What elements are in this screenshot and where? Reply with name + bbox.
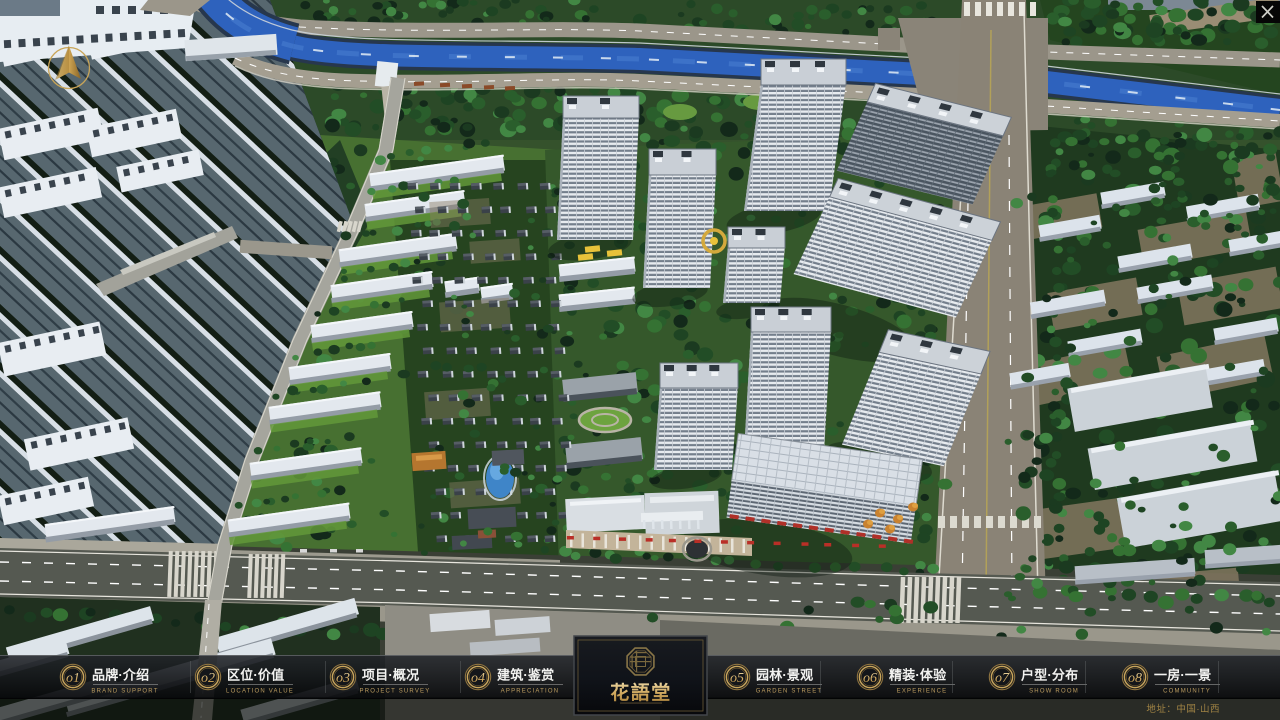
svg-text:EXPERIENCE: EXPERIENCE [897, 689, 948, 695]
svg-text:SHOW ROOM: SHOW ROOM [1029, 689, 1079, 695]
svg-text:GARDEN STREET: GARDEN STREET [756, 689, 823, 695]
svg-text:o2: o2 [201, 671, 215, 686]
svg-text:区位·价值: 区位·价值 [227, 668, 284, 683]
svg-text:o3: o3 [336, 671, 350, 686]
svg-text:o4: o4 [471, 671, 485, 686]
svg-text:花語堂: 花語堂 [610, 681, 672, 704]
svg-text:品牌·介绍: 品牌·介绍 [92, 668, 149, 683]
svg-text:o8: o8 [1128, 671, 1142, 686]
svg-text:项目·概况: 项目·概况 [362, 668, 419, 683]
svg-text:o7: o7 [995, 671, 1010, 686]
svg-text:PROJECT SURVEY: PROJECT SURVEY [360, 689, 431, 695]
svg-text:地址：中国·山西: 地址：中国·山西 [1146, 703, 1220, 715]
svg-text:建筑·鉴赏: 建筑·鉴赏 [497, 668, 554, 683]
svg-text:o5: o5 [730, 671, 744, 686]
svg-text:o6: o6 [863, 671, 877, 686]
svg-text:精装·体验: 精装·体验 [889, 668, 947, 683]
svg-text:一房·一景: 一房·一景 [1154, 668, 1211, 683]
svg-text:园林·景观: 园林·景观 [756, 668, 813, 683]
svg-text:o1: o1 [66, 671, 80, 686]
svg-text:APPRECIATION: APPRECIATION [501, 689, 560, 695]
svg-text:户型·分布: 户型·分布 [1021, 668, 1078, 683]
svg-text:LOCATION VALUE: LOCATION VALUE [226, 689, 294, 695]
svg-text:BRAND SUPPORT: BRAND SUPPORT [91, 689, 158, 695]
svg-text:COMMUNITY: COMMUNITY [1163, 689, 1211, 695]
